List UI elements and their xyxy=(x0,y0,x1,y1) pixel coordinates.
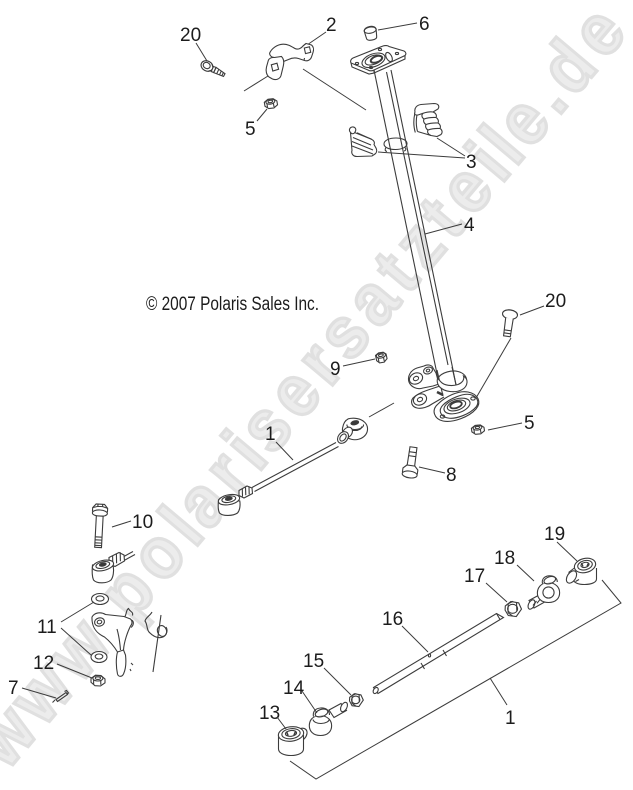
svg-text:18: 18 xyxy=(494,548,515,569)
svg-text:5: 5 xyxy=(245,119,256,140)
svg-text:3: 3 xyxy=(466,152,477,173)
svg-text:12: 12 xyxy=(33,653,54,674)
svg-text:20: 20 xyxy=(180,25,201,46)
svg-text:13: 13 xyxy=(259,703,280,724)
svg-text:1: 1 xyxy=(505,708,516,729)
svg-text:9: 9 xyxy=(330,359,341,380)
svg-text:14: 14 xyxy=(283,678,305,699)
svg-text:17: 17 xyxy=(464,566,485,587)
svg-text:19: 19 xyxy=(544,524,565,545)
svg-text:© 2007 Polaris Sales Inc.: © 2007 Polaris Sales Inc. xyxy=(146,294,319,315)
svg-text:7: 7 xyxy=(8,678,19,699)
svg-text:6: 6 xyxy=(419,14,430,35)
svg-text:11: 11 xyxy=(37,617,57,638)
svg-text:4: 4 xyxy=(464,215,475,236)
svg-text:5: 5 xyxy=(524,413,535,434)
svg-text:8: 8 xyxy=(446,465,457,486)
svg-text:10: 10 xyxy=(132,512,153,533)
svg-text:2: 2 xyxy=(326,15,337,36)
svg-text:20: 20 xyxy=(545,291,566,312)
svg-text:15: 15 xyxy=(303,651,324,672)
svg-text:1: 1 xyxy=(265,424,276,445)
svg-text:16: 16 xyxy=(382,609,403,630)
